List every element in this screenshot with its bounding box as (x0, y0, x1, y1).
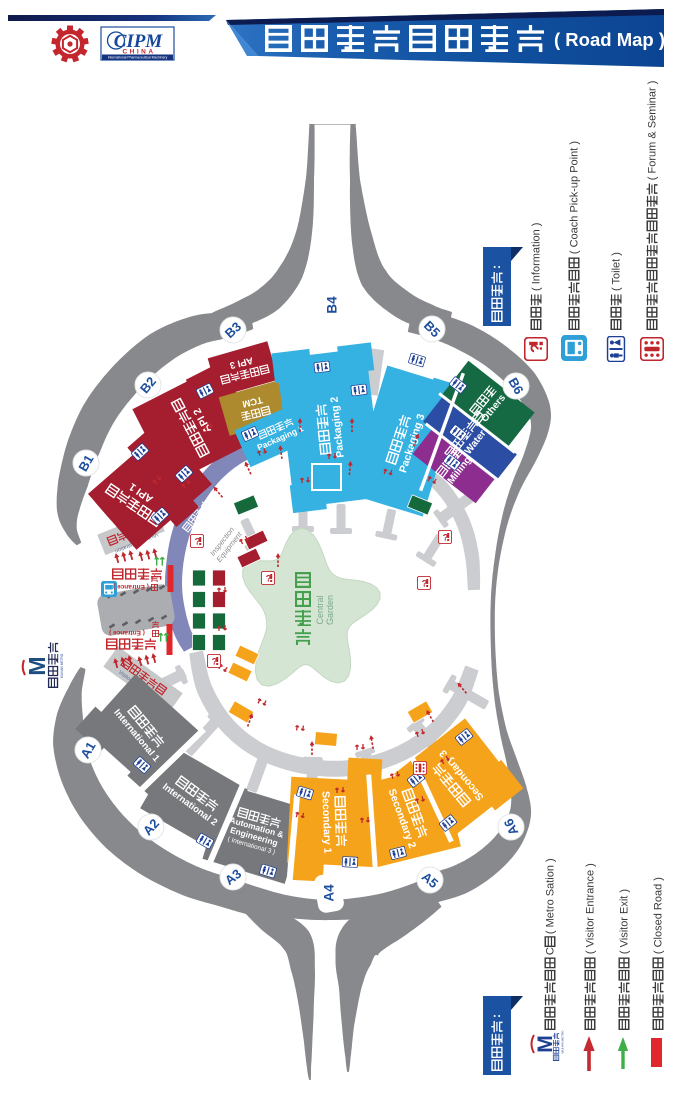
svg-text:( Forum & Seminar ): ( Forum & Seminar ) (647, 81, 659, 181)
svg-text:( Toilet ): ( Toilet ) (611, 252, 623, 291)
svg-text:( Closed Road ): ( Closed Road ) (653, 877, 665, 954)
svg-text:C: C (545, 947, 557, 955)
svg-text:Central: Central (315, 595, 325, 624)
svg-text:CHINA: CHINA (122, 49, 155, 56)
svg-text:WUHAN METRO: WUHAN METRO (60, 653, 64, 678)
svg-text:( Visitor Entrance ): ( Visitor Entrance ) (585, 863, 597, 954)
svg-text:( Information ): ( Information ) (531, 223, 543, 291)
svg-text:( Visitor Exit ): ( Visitor Exit ) (619, 889, 631, 954)
svg-text:M: M (24, 656, 50, 675)
svg-text:( Metro Sation ): ( Metro Sation ) (545, 858, 557, 934)
svg-text:( Road Map ): ( Road Map ) (554, 29, 665, 50)
svg-text:Garden: Garden (325, 595, 335, 625)
svg-text::: : (489, 1014, 503, 1018)
svg-text:Secondary 1: Secondary 1 (319, 791, 333, 854)
svg-text:( Entrance ): ( Entrance ) (109, 629, 145, 636)
svg-text:( Coach Pick-up Point ): ( Coach Pick-up Point ) (569, 141, 581, 254)
svg-text:A4: A4 (322, 884, 337, 902)
svg-text:( Entrance ): ( Entrance ) (113, 583, 149, 590)
svg-text:International Pharmaceutical M: International Pharmaceutical Machinery (108, 56, 168, 60)
svg-text:B4: B4 (325, 296, 340, 314)
svg-text:WUHAN METRO: WUHAN METRO (561, 1030, 565, 1054)
svg-text::: : (489, 265, 503, 269)
